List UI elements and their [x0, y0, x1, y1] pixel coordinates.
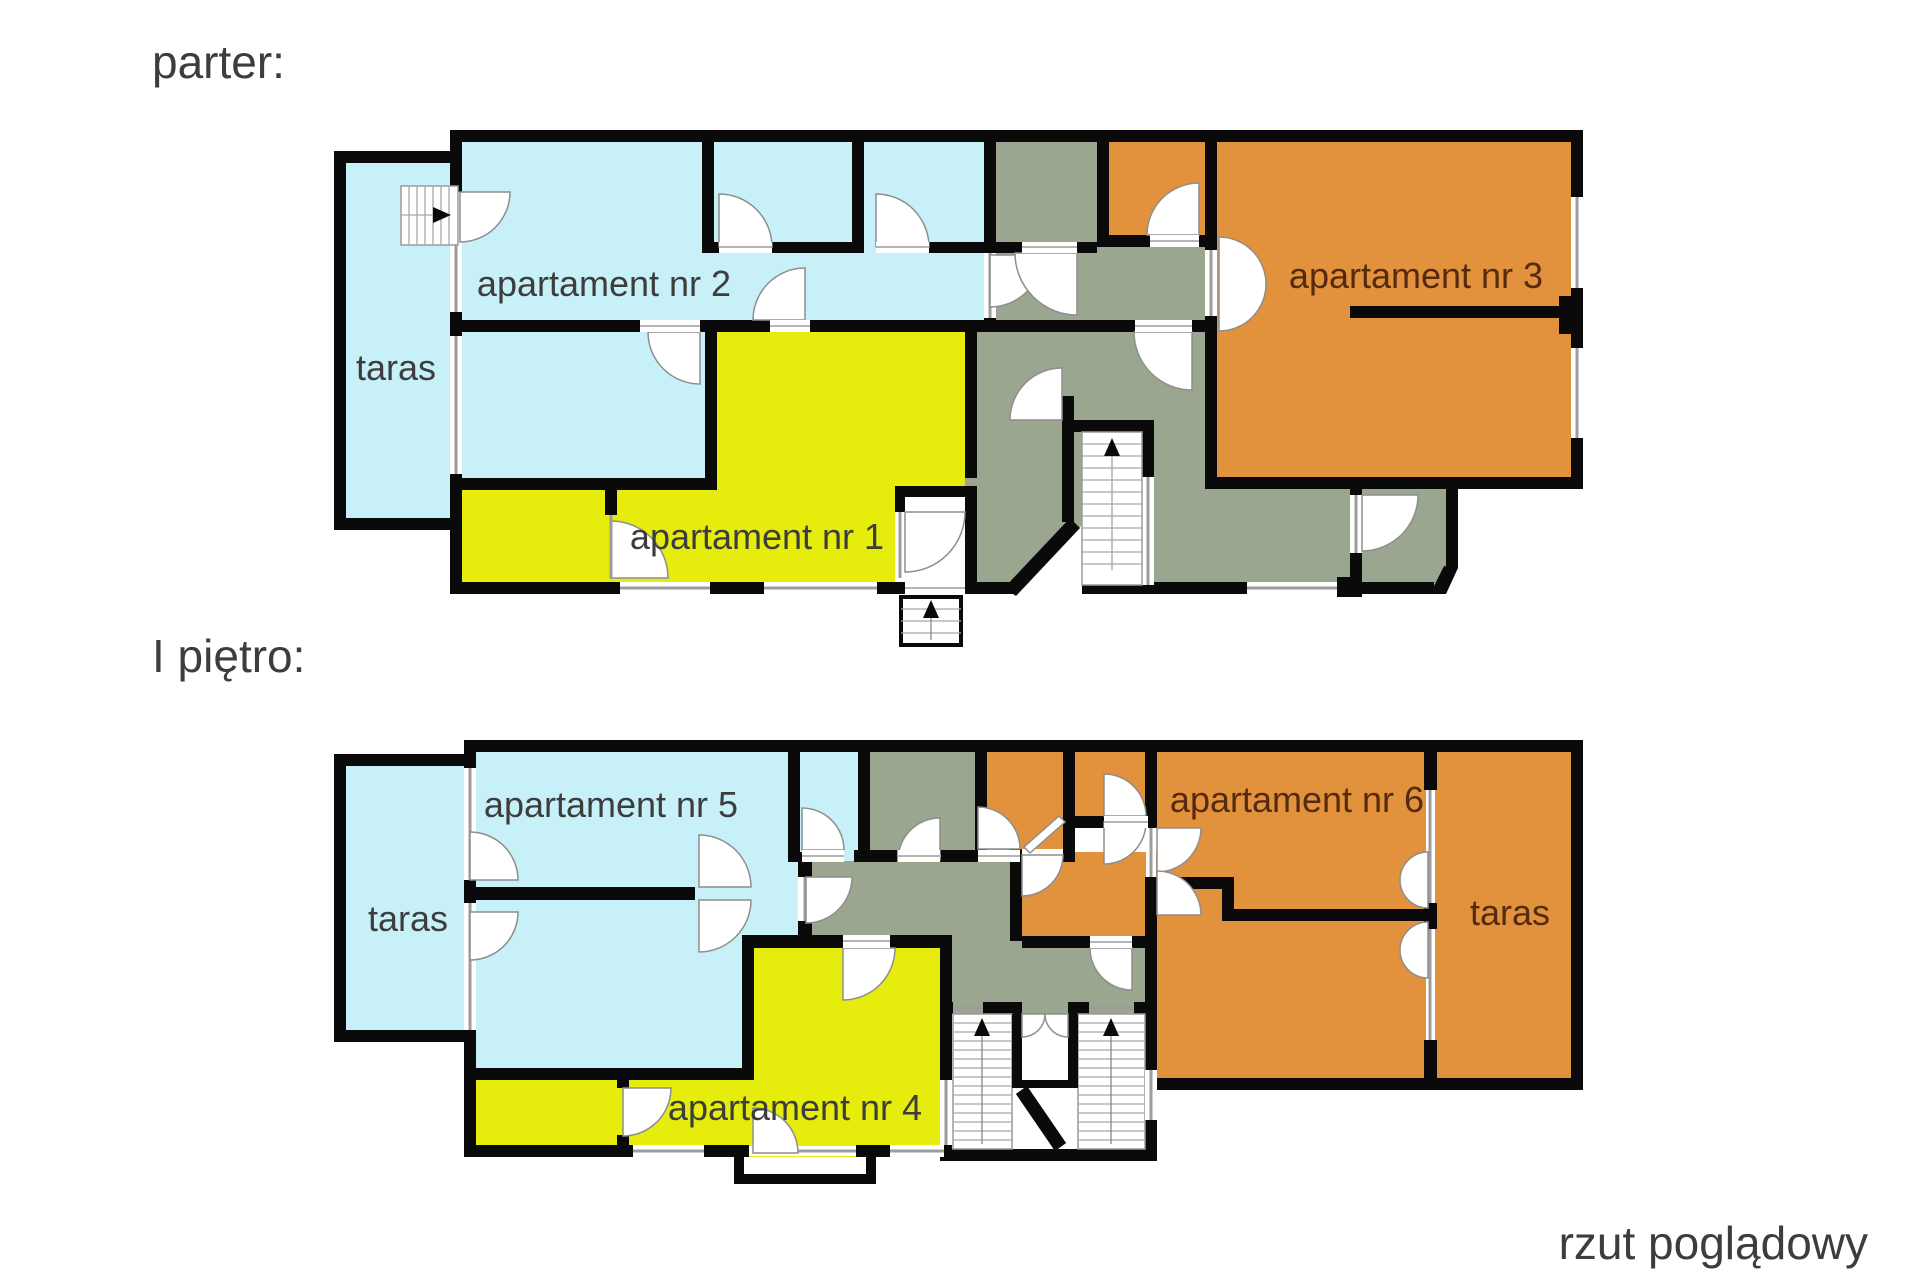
- svg-text:apartament nr 2: apartament nr 2: [477, 263, 731, 304]
- svg-text:I piętro:: I piętro:: [152, 630, 305, 682]
- svg-text:parter:: parter:: [152, 36, 285, 88]
- svg-text:apartament nr 3: apartament nr 3: [1289, 255, 1543, 296]
- svg-text:apartament nr 5: apartament nr 5: [484, 784, 738, 825]
- svg-text:apartament nr 6: apartament nr 6: [1170, 779, 1424, 820]
- svg-text:apartament nr 1: apartament nr 1: [630, 516, 884, 557]
- svg-text:taras: taras: [356, 347, 436, 388]
- svg-text:apartament nr 4: apartament nr 4: [668, 1087, 922, 1128]
- svg-text:rzut poglądowy: rzut poglądowy: [1559, 1217, 1868, 1269]
- svg-text:taras: taras: [368, 898, 448, 939]
- svg-text:taras: taras: [1470, 892, 1550, 933]
